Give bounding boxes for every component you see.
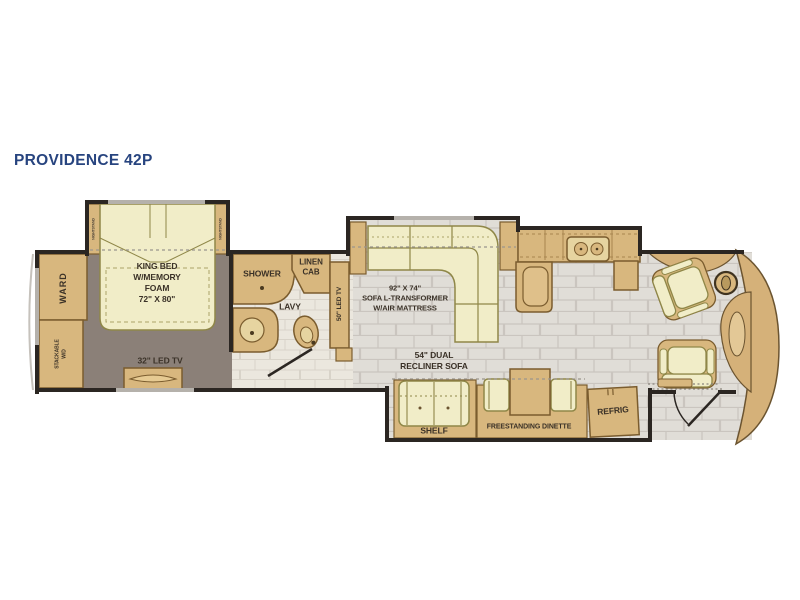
lavy-label: LAVY — [279, 301, 301, 312]
dinette-label: FREESTANDING DINETTE — [487, 422, 572, 431]
sink-drain-left-icon — [580, 248, 583, 251]
tv-32-label: 32" LED TV — [137, 355, 182, 366]
king-bed-label: KING BED W/MEMORY FOAM 72" X 80" — [133, 261, 181, 305]
entry-step — [658, 379, 692, 387]
tv-50-label: 50" LED TV — [336, 287, 344, 321]
dinette-table — [510, 369, 550, 415]
hall-cabinet — [336, 348, 352, 361]
linen-cab-label: LINEN CAB — [299, 258, 323, 279]
steering-hub-icon — [722, 276, 731, 290]
rear-cap-line — [29, 254, 33, 390]
nightstand-right-label: NIGHTSTAND — [219, 218, 224, 240]
dash-console-icon — [729, 312, 745, 356]
shower-drain-icon — [260, 286, 264, 290]
sink-drain-icon — [250, 331, 254, 335]
kitchen-counter-return — [614, 261, 638, 290]
sink-drain-right-icon — [596, 248, 599, 251]
shelf-label: SHELF — [420, 425, 447, 436]
recliner-dot-right — [447, 407, 450, 410]
stackable-wd-label: STACKABLE W/D — [55, 334, 68, 374]
dinette-chair-right — [551, 379, 576, 411]
sofa-end-cabinet-left — [350, 222, 366, 274]
nightstand-left-label: NIGHTSTAND — [92, 218, 97, 240]
floorplan-page: PROVIDENCE 42P WARD STACKABLE W/D NIGHTS… — [0, 0, 800, 600]
sink-bowl-icon — [240, 318, 264, 342]
plan-title: PROVIDENCE 42P — [14, 152, 153, 169]
recliner-dot-left — [419, 407, 422, 410]
shower-label: SHOWER — [243, 268, 281, 279]
recliner-sofa-label: 54" DUAL RECLINER SOFA — [400, 350, 468, 372]
sofa-label: 92" X 74" SOFA L-TRANSFORMER W/AIR MATTR… — [362, 283, 448, 312]
dinette-chair-left — [484, 379, 509, 411]
ward-label: WARD — [58, 272, 70, 304]
peninsula-top-line — [523, 267, 548, 306]
